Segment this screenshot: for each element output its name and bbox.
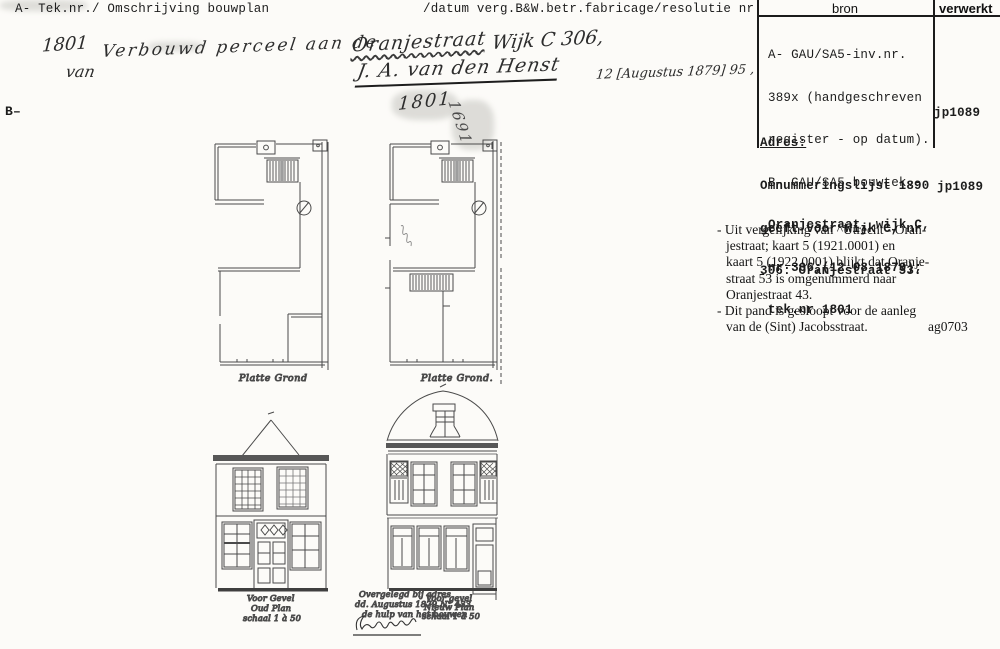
scanned-archive-card: A- Tek.nr./ Omschrijving bouwplan /datum… (0, 0, 1000, 649)
left-facade-caption-3: schaal 1 à 50 (243, 613, 302, 623)
verwerkt-code: jp1089 (934, 106, 980, 120)
middle-note-line-2: dd. Augustus 1879 N° 433 (355, 599, 471, 609)
left-plan-label: Platte Grond (238, 373, 308, 384)
right-plan-label: Platte Grond. (420, 373, 493, 384)
note-line: Oranjestraat 43. (717, 287, 929, 303)
header-tek-nr: A- Tek.nr./ Omschrijving bouwplan (15, 2, 269, 16)
notes-block: - Uit vergelijking van ^Utrecht - Oran- … (717, 222, 929, 335)
note-line: - Uit vergelijking van ^Utrecht - Oran- (717, 222, 929, 238)
handwritten-tek-nr: 1801 (41, 32, 88, 56)
notes-code: ag0703 (928, 319, 968, 335)
note-line: straat 53 is omgenummerd naar (717, 271, 929, 287)
left-facade-caption-1: Voor Gevel (247, 593, 295, 603)
verwerkt-code: jp1089 (937, 180, 983, 194)
note-line: - Dit pand is gesloopt voor de aanleg (717, 303, 929, 319)
bron-line: 389x (handgeschreven (768, 91, 930, 106)
table-border-left (757, 0, 759, 148)
column-header-verwerkt: verwerkt (939, 1, 992, 16)
b-label: B– (5, 104, 21, 119)
note-line: kaart 5 (1922.0001) blijkt dat Oranje- (717, 254, 929, 270)
column-header-bron: bron (757, 1, 933, 16)
handwritten-date: 12 [Augustus 1879] 95 , (595, 62, 755, 83)
middle-note-line-1: Overgelegd bij adres (359, 589, 451, 599)
floor-plan-old (215, 140, 328, 370)
facade-new-plan (386, 384, 498, 600)
handwritten-description: Verbouwd perceel aan de (101, 32, 380, 62)
adres-line: Omnummeringslijst 1890 (760, 179, 929, 194)
note-line: jestraat; kaart 5 (1921.0001) en (717, 238, 929, 254)
floor-plan-new (385, 140, 501, 384)
left-facade-caption-2: Oud Plan (251, 603, 291, 613)
building-plan-drawing: Platte Grond (185, 138, 545, 649)
handwritten-van: van (64, 62, 96, 81)
facade-old-plan (213, 412, 329, 592)
table-divider (933, 0, 935, 148)
handwritten-owner-name: J. A. van den Henst (355, 53, 562, 87)
note-line: van de (Sint) Jacobsstraat. (717, 319, 929, 335)
middle-note-line-3: de hulp van het bouwen (362, 609, 467, 619)
adres-label: Adres: (760, 136, 806, 150)
handwritten-wijk: Wijk C 306, (491, 26, 605, 54)
header-datum-verg: /datum verg.B&W.betr.fabricage/resolutie… (423, 2, 762, 16)
bron-line: A- GAU/SA5-inv.nr. (768, 48, 930, 63)
